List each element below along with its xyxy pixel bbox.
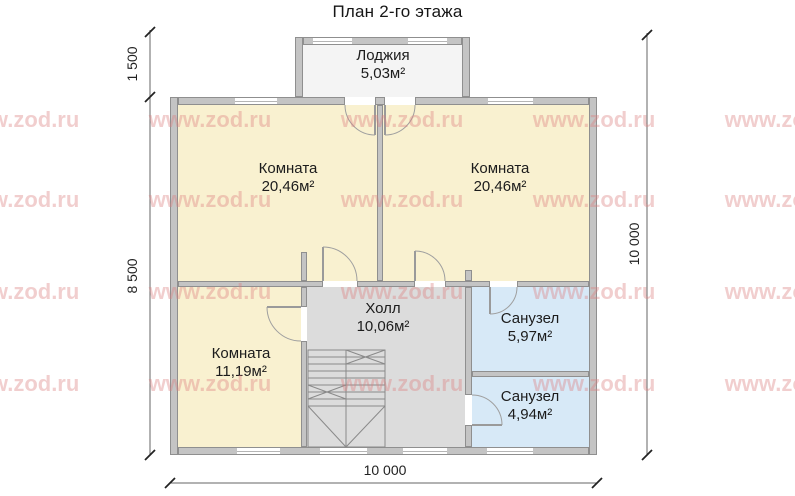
wall-outer-top-center-segment — [375, 97, 385, 105]
dimension-label-right: 10 000 — [626, 223, 642, 266]
watermark: www.zod.ru — [725, 279, 795, 305]
wall-stub-top-right-room — [465, 270, 472, 281]
window-top-left-room — [235, 97, 277, 105]
watermark: www.zod.ru — [725, 107, 795, 133]
wall-hall-right-upper — [465, 287, 472, 395]
room-area: 4,94м² — [501, 406, 559, 424]
watermark: www.zod.ru — [725, 371, 795, 397]
room-label-bathroom-2: Санузел 4,94м² — [501, 388, 559, 424]
room-name: Санузел — [501, 388, 559, 406]
wall-loggia-right — [462, 37, 470, 97]
room-label-bathroom-1: Санузел 5,97м² — [501, 310, 559, 346]
window-top-right-room — [488, 97, 533, 105]
wall-room-bl-right-upper — [301, 287, 307, 307]
watermark: www.zod.ru — [725, 187, 795, 213]
window-loggia-1 — [313, 37, 352, 45]
page-title: План 2-го этажа — [0, 2, 795, 22]
room-label-bottom-left: Комната 11,19м² — [212, 345, 271, 381]
room-area: 10,06м² — [357, 318, 410, 336]
watermark: www.zod.ru — [0, 279, 79, 305]
wall-bathroom-divider — [472, 371, 589, 377]
window-bottom-4 — [487, 447, 533, 455]
wall-room-bl-right-lower — [301, 341, 307, 447]
room-name: Комната — [471, 160, 530, 178]
room-label-hall: Холл 10,06м² — [357, 300, 410, 336]
wall-loggia-left — [295, 37, 303, 97]
watermark: www.zod.ru — [0, 371, 79, 397]
window-bottom-3 — [403, 447, 447, 455]
room-label-loggia: Лоджия 5,03м² — [356, 47, 409, 83]
room-name: Лоджия — [356, 47, 409, 65]
window-loggia-2 — [408, 37, 447, 45]
room-area: 5,03м² — [356, 65, 409, 83]
room-label-top-left: Комната 20,46м² — [259, 160, 318, 196]
wall-mid-horizontal-2 — [357, 281, 415, 287]
watermark: www.zod.ru — [0, 187, 79, 213]
window-bottom-2 — [320, 447, 367, 455]
room-area: 5,97м² — [501, 328, 559, 346]
room-name: Санузел — [501, 310, 559, 328]
floor-plan-canvas: План 2-го этажа — [0, 0, 795, 496]
wall-stub-top-left-room — [301, 252, 307, 281]
dimension-label-left-main: 8 500 — [124, 258, 140, 293]
wall-outer-right — [589, 97, 597, 455]
dimension-label-left-top: 1 500 — [124, 46, 140, 81]
window-bottom-1 — [237, 447, 280, 455]
wall-mid-horizontal-4 — [517, 281, 589, 287]
room-name: Комната — [212, 345, 271, 363]
room-label-top-right: Комната 20,46м² — [471, 160, 530, 196]
wall-hall-right-lower — [465, 425, 472, 447]
room-area: 20,46м² — [471, 178, 530, 196]
wall-outer-left — [170, 97, 178, 455]
room-area: 20,46м² — [259, 178, 318, 196]
room-name: Холл — [357, 300, 410, 318]
wall-center-vertical — [377, 105, 383, 281]
room-area: 11,19м² — [212, 363, 271, 381]
room-name: Комната — [259, 160, 318, 178]
dimension-label-bottom: 10 000 — [364, 462, 407, 478]
watermark: www.zod.ru — [0, 107, 79, 133]
